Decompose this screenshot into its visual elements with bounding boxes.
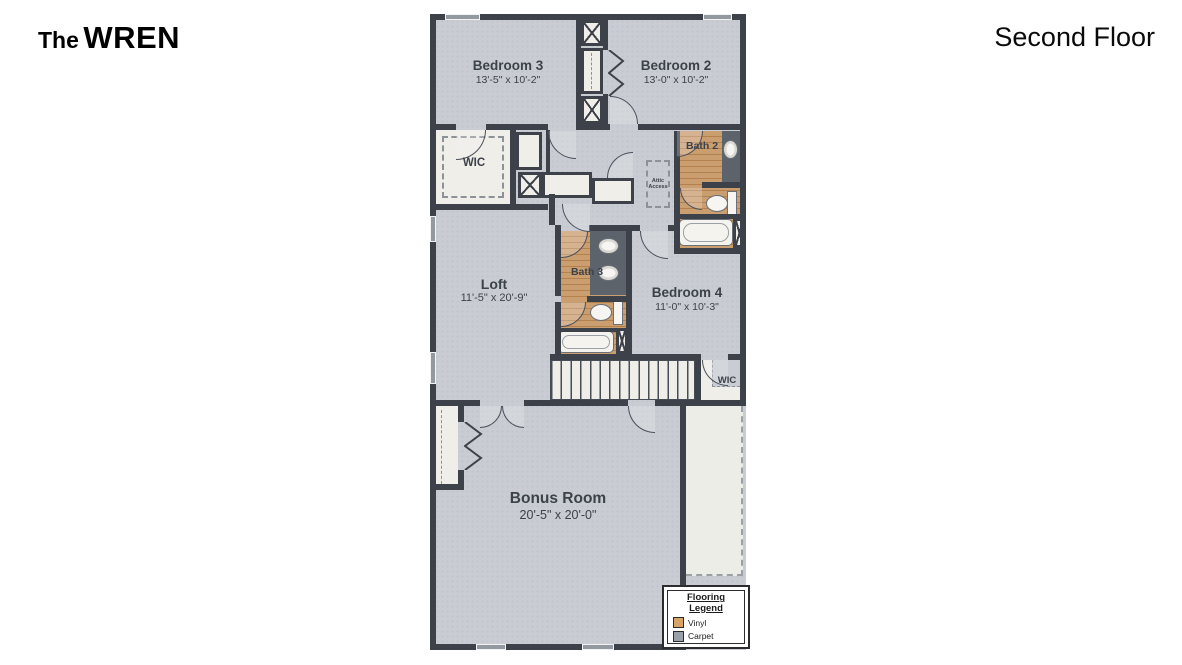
wall bbox=[668, 225, 674, 231]
vinyl-swatch bbox=[673, 617, 684, 628]
wall bbox=[626, 231, 632, 354]
door-arc-bedroom3 bbox=[548, 131, 576, 159]
bedroom2-closet bbox=[581, 48, 603, 94]
wall bbox=[638, 124, 740, 130]
window bbox=[445, 14, 480, 20]
bath2-sink bbox=[723, 140, 738, 159]
bifold-door-bedroom2-closet bbox=[608, 50, 626, 96]
bath3-toilet-tank bbox=[613, 301, 623, 325]
wall bbox=[576, 20, 581, 124]
wall bbox=[555, 328, 617, 332]
wall bbox=[486, 124, 548, 130]
wall bbox=[458, 406, 464, 422]
door-arc-bonus-entry bbox=[628, 406, 655, 433]
hall-closet-upper bbox=[516, 132, 542, 170]
bath2-tub bbox=[679, 219, 733, 246]
wic-right-label: WIC bbox=[718, 376, 736, 387]
wall bbox=[430, 14, 436, 650]
staircase bbox=[550, 360, 695, 400]
flooring-legend-inner: Flooring Legend Vinyl Carpet bbox=[667, 590, 745, 644]
wall bbox=[510, 130, 516, 210]
legend-title-line2: Legend bbox=[673, 604, 739, 615]
bedroom3-dims: 13'-5" x 10'-2" bbox=[473, 74, 544, 86]
bath3-sink-1 bbox=[598, 238, 619, 254]
window bbox=[703, 14, 732, 20]
legend-item-vinyl: Vinyl bbox=[673, 617, 739, 628]
unfinished-storage-area bbox=[686, 406, 743, 576]
attic-access-line2: Access bbox=[648, 184, 667, 190]
carpet-swatch bbox=[673, 631, 684, 642]
door-arc-bedroom4 bbox=[640, 231, 668, 259]
bedroom4-dims: 11'-0" x 10'-3" bbox=[652, 301, 723, 313]
wall bbox=[674, 248, 746, 254]
door-arc-bedroom2 bbox=[610, 96, 638, 124]
wall bbox=[702, 182, 740, 188]
wall bbox=[632, 225, 640, 231]
bath3-label: Bath 3 bbox=[571, 266, 603, 278]
window bbox=[430, 216, 436, 242]
bifold-door-bonus-closet bbox=[464, 422, 484, 470]
loft-label: Loft 11'-5" x 20'-9" bbox=[461, 276, 528, 305]
wall bbox=[524, 400, 628, 406]
bedroom2-dims: 13'-0" x 10'-2" bbox=[641, 74, 712, 86]
hall-closet-2 bbox=[592, 178, 634, 204]
wall bbox=[549, 194, 555, 225]
bath2-toilet-bowl bbox=[706, 195, 728, 212]
door-arc-loft-hall bbox=[562, 204, 590, 232]
attic-access-box: Attic Access bbox=[646, 160, 670, 208]
carpet-label: Carpet bbox=[688, 631, 714, 641]
chase-x-bottom bbox=[581, 96, 603, 124]
window bbox=[476, 644, 506, 650]
hall-x-closet bbox=[518, 172, 542, 198]
bedroom2-label: Bedroom 2 13'-0" x 10'-2" bbox=[641, 58, 712, 86]
wall bbox=[436, 204, 548, 210]
bath3-tub bbox=[558, 331, 614, 353]
bedroom3-label: Bedroom 3 13'-5" x 10'-2" bbox=[473, 58, 544, 86]
wall bbox=[550, 354, 701, 360]
wall bbox=[587, 296, 626, 302]
bath3-toilet-bowl bbox=[590, 304, 612, 321]
wall bbox=[430, 644, 686, 650]
bedroom4-label: Bedroom 4 11'-0" x 10'-3" bbox=[652, 285, 723, 313]
wall bbox=[680, 214, 746, 219]
loft-dims: 11'-5" x 20'-9" bbox=[461, 292, 528, 305]
bonus-room-dims: 20'-5" x 20'-0" bbox=[510, 508, 606, 522]
bonus-closet bbox=[436, 406, 458, 490]
door-arc-bonus-right-leaf bbox=[502, 406, 524, 428]
bath2-toilet-tank bbox=[727, 191, 737, 216]
floor-label: Second Floor bbox=[994, 22, 1155, 53]
wall bbox=[436, 124, 456, 130]
bonus-closet-rod bbox=[441, 410, 442, 484]
wall bbox=[576, 124, 610, 130]
plan-title: The WREN bbox=[38, 20, 180, 56]
flooring-legend: Flooring Legend Vinyl Carpet bbox=[662, 585, 750, 649]
floor-plan: Attic Access bbox=[430, 14, 746, 650]
window bbox=[582, 644, 614, 650]
wic-left-label: WIC bbox=[463, 157, 485, 170]
closet-rod bbox=[591, 53, 592, 89]
wall bbox=[728, 354, 746, 360]
wall bbox=[436, 484, 464, 490]
legend-item-carpet: Carpet bbox=[673, 631, 739, 642]
chase-x-top bbox=[581, 20, 603, 46]
plan-title-name: WREN bbox=[83, 20, 180, 55]
wall bbox=[740, 14, 746, 406]
wall bbox=[603, 94, 608, 124]
window bbox=[430, 352, 436, 384]
bath2-label: Bath 2 bbox=[686, 140, 718, 152]
wall bbox=[603, 20, 608, 50]
wall bbox=[589, 225, 632, 231]
bonus-room-label: Bonus Room 20'-5" x 20'-0" bbox=[510, 490, 606, 522]
vinyl-label: Vinyl bbox=[688, 618, 706, 628]
door-arc-hall-closet bbox=[607, 152, 633, 178]
plan-title-prefix: The bbox=[38, 27, 79, 53]
wall bbox=[655, 400, 746, 406]
wall bbox=[695, 360, 701, 400]
